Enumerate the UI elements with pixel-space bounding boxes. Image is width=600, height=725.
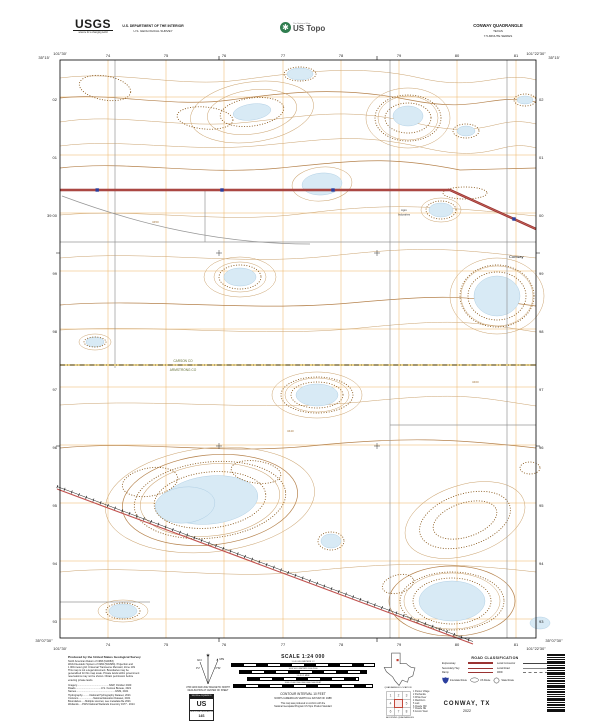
source-line: Wetlands.....FWS National Wetlands Inven…: [68, 703, 196, 706]
conformance-note: This map was produced to conform with th…: [225, 703, 381, 709]
svg-text:76: 76: [222, 642, 227, 647]
svg-text:79: 79: [397, 53, 402, 58]
county-label-north: CARSON CO: [173, 359, 193, 363]
town-label: Conway: [509, 254, 523, 259]
legend-label: Expressway: [442, 662, 468, 665]
svg-text:78: 78: [339, 53, 344, 58]
utm-grid: [60, 60, 536, 638]
svg-text:97: 97: [539, 387, 544, 392]
local-connector-swatch: [523, 663, 549, 664]
quad-name: CONWAY QUADRANGLE: [452, 23, 544, 28]
quadrangle-title: CONWAY QUADRANGLE TEXAS 7.5-MINUTE SERIE…: [452, 23, 544, 38]
svg-text:94: 94: [53, 561, 58, 566]
dept-line2: U.S. GEOLOGICAL SURVEY: [110, 29, 196, 33]
svg-text:1: 1: [390, 694, 392, 698]
spot-elevation-3: 3460: [472, 380, 479, 384]
dept-line1: U.S. DEPARTMENT OF THE INTERIOR: [110, 24, 196, 28]
ustopo-logo: ✱ The National Map US Topo: [280, 22, 325, 33]
svg-text:97: 97: [53, 387, 58, 392]
scale-bar-mi: [247, 677, 359, 681]
svg-text:98: 98: [53, 329, 58, 334]
svg-text:74: 74: [106, 53, 111, 58]
legend-label: Ramp: [442, 671, 468, 674]
svg-text:95: 95: [539, 503, 544, 508]
svg-text:101°22'30": 101°22'30": [526, 646, 546, 651]
map-canvas: CARSON CO ARMSTRONG CO Agro Industries C…: [0, 0, 600, 725]
quad-series: 7.5-MINUTE SERIES: [452, 34, 544, 38]
svg-text:81: 81: [514, 53, 519, 58]
svg-text:35°15': 35°15': [38, 55, 49, 60]
svg-text:93: 93: [539, 619, 544, 624]
road-classification-legend: ROAD CLASSIFICATION Expressway Local Con…: [442, 656, 548, 684]
department-header: U.S. DEPARTMENT OF THE INTERIOR U.S. GEO…: [110, 24, 196, 33]
svg-text:99: 99: [539, 271, 544, 276]
map-title-block: CONWAY, TX 2022: [427, 701, 507, 713]
svg-text:75: 75: [164, 642, 169, 647]
mgrs-gzd: 14S: [190, 714, 213, 720]
usgs-logo-text: USGS: [73, 18, 113, 30]
usgs-topo-map-sheet: CARSON CO ARMSTRONG CO Agro Industries C…: [0, 0, 600, 725]
credit-line: entering private lands.: [68, 679, 196, 682]
svg-text:77: 77: [281, 53, 286, 58]
scale-bar-km: [231, 663, 375, 667]
barcode: [547, 654, 567, 714]
ustopo-globe-icon: ✱: [280, 22, 291, 33]
railroad: [57, 487, 473, 645]
mn-label: MN: [220, 657, 225, 661]
scale-bar-m: [239, 670, 367, 674]
svg-text:39 00: 39 00: [47, 213, 58, 218]
facility-label-1: Agro: [401, 208, 407, 212]
svg-text:80: 80: [455, 642, 460, 647]
svg-text:96: 96: [539, 445, 544, 450]
facility-label-2: Industries: [398, 213, 411, 217]
svg-text:80: 80: [455, 53, 460, 58]
spot-elevation-2: 3440: [287, 429, 294, 433]
depression-contours: [77, 67, 540, 630]
svg-text:79: 79: [397, 642, 402, 647]
svg-text:76: 76: [222, 53, 227, 58]
mgrs-square-id: US: [190, 699, 213, 711]
adjoining-caption: ADJOINING QUADRANGLES: [372, 717, 428, 719]
state-route-shield-icon: [493, 677, 500, 684]
adjoining-quads-grid: 123 45 678: [386, 691, 411, 716]
svg-text:02: 02: [539, 97, 544, 102]
spot-elevation-1: 3450: [152, 220, 159, 224]
quad-location-caption: QUADRANGLE LOCATION: [368, 687, 428, 689]
svg-text:94: 94: [539, 561, 544, 566]
secondary-hwy-swatch: [468, 668, 494, 669]
quad-state: TEXAS: [452, 29, 544, 33]
map-title: CONWAY, TX: [427, 701, 507, 707]
svg-text:78: 78: [339, 642, 344, 647]
svg-text:81: 81: [514, 642, 519, 647]
svg-text:99: 99: [53, 271, 58, 276]
ustopo-brand: US Topo: [293, 25, 325, 33]
legend-label: Interstate Route: [450, 679, 467, 682]
scale-bar-ft: [233, 684, 373, 688]
svg-text:35°07'30": 35°07'30": [35, 638, 53, 643]
svg-text:101°30': 101°30': [53, 51, 67, 56]
svg-text:01: 01: [539, 155, 544, 160]
local-roads: [60, 60, 536, 638]
legend-label: Local Connector: [497, 662, 523, 665]
scale-title: SCALE 1:24 000: [225, 654, 381, 660]
county-label-south: ARMSTRONG CO: [170, 368, 197, 372]
ramp-swatch: [468, 672, 494, 673]
contour-interval: CONTOUR INTERVAL 10 FEET: [225, 692, 381, 696]
svg-text:35°15': 35°15': [548, 55, 559, 60]
legend-label: State Route: [501, 679, 514, 682]
state-locator-map: [380, 652, 416, 686]
svg-text:6: 6: [390, 710, 392, 714]
vertical-datum: NORTH AMERICAN VERTICAL DATUM OF 1988: [225, 697, 381, 700]
legend-label: Secondary Hwy: [442, 667, 468, 670]
svg-text:★: ★: [206, 653, 211, 659]
conform-line2: National Geospatial Program US Topo Prod…: [225, 706, 381, 709]
svg-text:75: 75: [164, 53, 169, 58]
quad-location-marker: [397, 659, 399, 661]
svg-text:01: 01: [53, 155, 58, 160]
svg-text:93: 93: [53, 619, 58, 624]
fourwd-swatch: [523, 672, 549, 673]
mgrs-reference-box: 100,000-m SQUARE ID US GRID ZONE DESIGNA…: [189, 694, 214, 721]
interchange-markers: [96, 188, 516, 220]
local-road-swatch: [523, 668, 549, 669]
interstate-shield-icon: [442, 677, 449, 684]
map-neatline: [60, 60, 536, 638]
legend-label: US Route: [480, 679, 490, 682]
svg-text:3: 3: [406, 694, 408, 698]
contour-interval-note: CONTOUR INTERVAL 10 FEET NORTH AMERICAN …: [225, 692, 381, 700]
map-year: 2022: [427, 709, 507, 713]
svg-text:8: 8: [406, 710, 408, 714]
gn-value: 0°2': [196, 668, 200, 670]
gn-label: GN: [197, 658, 202, 662]
svg-text:4: 4: [390, 702, 392, 706]
mn-value: 6°52': [216, 668, 222, 670]
production-credits: Produced by the United States Geological…: [68, 655, 196, 706]
svg-text:101°22'30": 101°22'30": [526, 51, 546, 56]
svg-text:101°30': 101°30': [53, 646, 67, 651]
svg-text:7: 7: [398, 710, 400, 714]
road-class-title: ROAD CLASSIFICATION: [442, 656, 548, 660]
svg-text:5: 5: [406, 702, 408, 706]
svg-text:98: 98: [539, 329, 544, 334]
expressway-swatch: [468, 662, 494, 664]
svg-text:02: 02: [53, 97, 58, 102]
produced-by-title: Produced by the United States Geological…: [68, 655, 196, 659]
svg-text:74: 74: [106, 642, 111, 647]
svg-text:2: 2: [398, 694, 400, 698]
svg-text:35°07'30": 35°07'30": [545, 638, 563, 643]
us-route-shield-icon: [470, 677, 479, 683]
legend-label: 4WD: [497, 671, 523, 674]
svg-text:00: 00: [539, 213, 544, 218]
usgs-logo: USGS science for a changing world: [73, 18, 113, 34]
svg-text:77: 77: [281, 642, 286, 647]
playa-lakes: [86, 68, 550, 629]
svg-text:95: 95: [53, 503, 58, 508]
legend-label: Local Road: [497, 667, 523, 670]
scale-block: SCALE 1:24 000 1 0.5 0 KILOMETERS 1 2 10…: [225, 654, 381, 688]
svg-text:96: 96: [53, 445, 58, 450]
